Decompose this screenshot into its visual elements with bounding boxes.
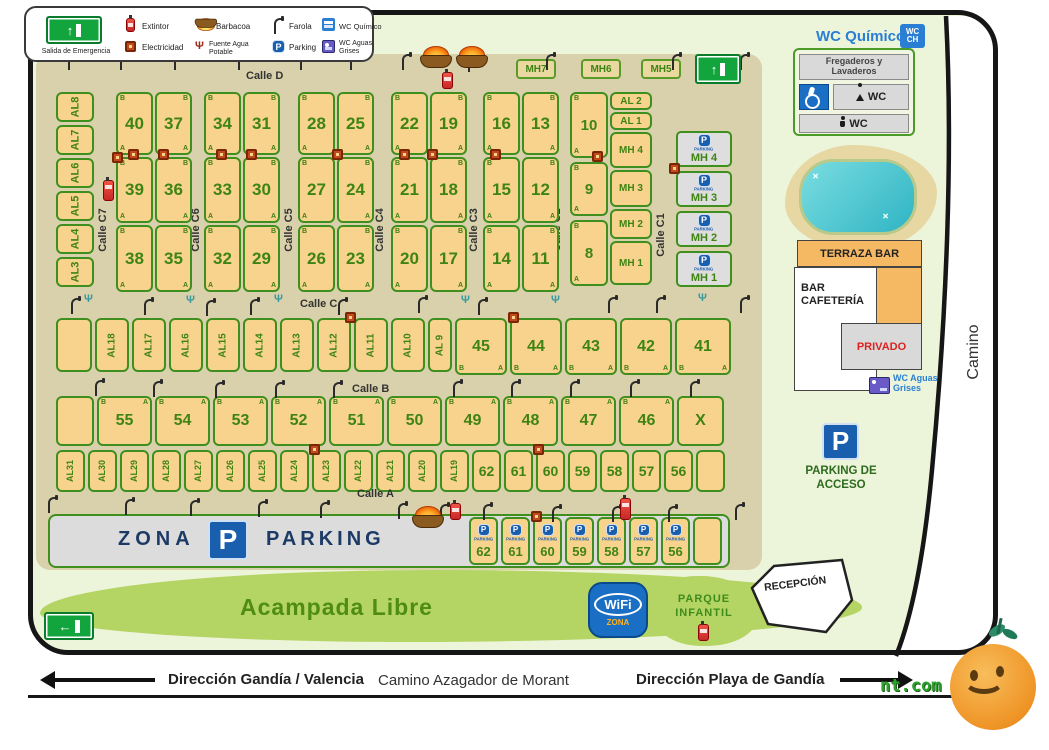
- plot-cell: B20A: [391, 225, 428, 292]
- handicap-icon: [799, 84, 829, 110]
- electricity-icon: [508, 312, 519, 323]
- up-arrow-icon: ↑: [67, 24, 74, 37]
- block6-right-column: AL 2 AL 1 MH 4 MH 3 MH 2 MH 1: [610, 92, 652, 285]
- al-plot-cell: AL6: [56, 158, 94, 188]
- electricity-icon: [332, 149, 343, 160]
- recepcion-building: [746, 558, 858, 638]
- plot-cell-blank: [693, 517, 722, 565]
- plot-cell: 62: [472, 450, 501, 492]
- parking-icon: P: [698, 134, 711, 147]
- al-plot-cell: AL28: [152, 450, 181, 492]
- farola-icon: [630, 381, 639, 396]
- plot-cell: B23A: [337, 225, 374, 292]
- street-label-calle-c5: Calle C5: [282, 198, 296, 262]
- legend-farola-label: Farola: [289, 22, 312, 31]
- plot-cell: B51A: [329, 396, 384, 446]
- al-plot-cell: AL20: [408, 450, 437, 492]
- door-icon: [75, 620, 80, 633]
- mh-plot-cell: MH 4: [610, 132, 652, 168]
- plot-cell: B18A: [430, 157, 467, 223]
- plot-cell: B36A: [155, 157, 192, 223]
- plot-cell: 57: [632, 450, 661, 492]
- plot-cell: B9A: [570, 162, 608, 216]
- al-plot-cell: AL26: [216, 450, 245, 492]
- electricity-icon: [490, 149, 501, 160]
- parking-icon: P: [822, 423, 859, 460]
- electricity-icon: [125, 41, 136, 52]
- watermark: nt.com: [880, 676, 941, 696]
- parking-icon: P: [208, 520, 248, 560]
- plot-cell: B26A: [298, 225, 335, 292]
- plot-cell: 45BA: [455, 318, 507, 375]
- wc-aguas-grises-label: WC Aguas Grises: [893, 373, 947, 394]
- mascot-leaf: [1001, 627, 1019, 642]
- farola-icon: [333, 382, 342, 397]
- mh-parking-cell: PPARKINGMH 3: [676, 171, 732, 207]
- parking-icon: P: [670, 524, 682, 536]
- al-plot-cell: AL16: [169, 318, 203, 372]
- parking-icon: P: [272, 40, 285, 53]
- plot-cell: 58: [600, 450, 629, 492]
- door-icon: [720, 63, 725, 76]
- al-plot-cell: AL18: [95, 318, 129, 372]
- parking-plot-cell: PPARKING56: [661, 517, 690, 565]
- farola-icon: [275, 382, 284, 397]
- electricity-icon: [345, 312, 356, 323]
- legend-salida-label: Salida de Emergencia: [30, 48, 122, 56]
- plot-cell: X: [677, 396, 724, 446]
- plot-cell: 60: [536, 450, 565, 492]
- fountain-icon: Ψ: [461, 295, 470, 306]
- farola-icon: [483, 504, 492, 519]
- plot-cell: B48A: [503, 396, 558, 446]
- plot-cell: B55A: [97, 396, 152, 446]
- parking-acceso-label: PARKING DE ACCESO: [786, 464, 896, 493]
- parking-icon: P: [698, 214, 711, 227]
- parking-icon: P: [542, 524, 554, 536]
- farola-icon: [740, 297, 749, 312]
- al-plot-cell: AL15: [206, 318, 240, 372]
- al-plot-cell: AL30: [88, 450, 117, 492]
- plot-block: B28A B25A B27A B24A B26A B23A: [298, 92, 374, 292]
- parking-icon: P: [698, 174, 711, 187]
- door-icon: [76, 24, 81, 37]
- woman-icon: [856, 94, 864, 101]
- al-plot-cell: AL3: [56, 257, 94, 287]
- parking-plot-cell: PPARKING58: [597, 517, 626, 565]
- plot-cell: B53A: [213, 396, 268, 446]
- plot-cell: 61: [504, 450, 533, 492]
- plot-cell: B29A: [243, 225, 280, 292]
- wifi-zone-icon: WiFi ZONA: [588, 582, 648, 638]
- al-plot-cell: AL14: [243, 318, 277, 372]
- plot-cell: B19A: [430, 92, 467, 155]
- plot-block: B16A B13A B15A B12A B14A B11A: [483, 92, 559, 292]
- plot-cell: B17A: [430, 225, 467, 292]
- plot-cell: B8A: [570, 220, 608, 286]
- plot-cell: B39A: [116, 157, 153, 223]
- direction-playa-gandia: Dirección Playa de Gandía: [636, 671, 824, 688]
- street-label-calle-c3: Calle C3: [467, 198, 481, 262]
- plot-cell: B40A: [116, 92, 153, 155]
- plot-cell: B34A: [204, 92, 241, 155]
- barbecue-icon: [412, 506, 442, 528]
- wc-aguas-grises-icon: [869, 377, 890, 394]
- plot-cell: B35A: [155, 225, 192, 292]
- plot-cell: B12A: [522, 157, 559, 223]
- farola-icon: [398, 503, 407, 518]
- al-plot-cell: AL21: [376, 450, 405, 492]
- legend: ↑ Salida de Emergencia Extintor Electric…: [24, 6, 374, 62]
- plot-cell: B21A: [391, 157, 428, 223]
- sanitary-block: Fregaderos y Lavaderos WC WC: [793, 48, 915, 136]
- wc-women-box: WC: [833, 84, 909, 110]
- electricity-icon: [309, 444, 320, 455]
- al-plot-cell: AL 1: [610, 112, 652, 130]
- electricity-icon: [128, 149, 139, 160]
- plot-cell: B30A: [243, 157, 280, 223]
- emergency-exit-sign: ↑: [695, 54, 741, 84]
- fountain-icon: Ψ: [551, 295, 560, 306]
- plot-cell: 42BA: [620, 318, 672, 375]
- parking-plot-cell: PPARKING59: [565, 517, 594, 565]
- parking-icon: P: [698, 254, 711, 267]
- plot-cell: B16A: [483, 92, 520, 155]
- mh-plot-cell: MH 3: [610, 170, 652, 207]
- left-al-column: AL8 AL7 AL6 AL5 AL4 AL3: [56, 92, 94, 287]
- farola-icon: [206, 300, 215, 315]
- mh-plot-cell: MH 2: [610, 209, 652, 239]
- legend-fuente-label: Fuente Agua Potable: [209, 41, 264, 56]
- plot-cell: B25A: [337, 92, 374, 155]
- al-plot-cell: AL29: [120, 450, 149, 492]
- campsite-map: Calle D MH7 MH6 MH5 ↑ AL8 AL7 AL6 AL5 AL…: [0, 0, 1049, 750]
- electricity-icon: [531, 511, 542, 522]
- al-plot-cell: AL7: [56, 125, 94, 155]
- plot-cell: B24A: [337, 157, 374, 223]
- plot-cell: B22A: [391, 92, 428, 155]
- street-label-calle-c: Calle C: [300, 298, 337, 310]
- row-al-south: AL31 AL30 AL29 AL28 AL27 AL26 AL25 AL24 …: [56, 450, 725, 492]
- street-label-calle-a: Calle A: [357, 488, 394, 500]
- farola-icon: [250, 299, 259, 314]
- left-arrow-icon: ←: [59, 620, 72, 633]
- man-icon: [840, 121, 845, 127]
- farola-icon: [478, 299, 487, 314]
- extinguisher-icon: [442, 72, 453, 89]
- extinguisher-icon: [620, 498, 631, 520]
- electricity-icon: [669, 163, 680, 174]
- electricity-icon: [216, 149, 227, 160]
- parking-icon: P: [478, 524, 490, 536]
- plot-cell: B15A: [483, 157, 520, 223]
- mh-parking-cell: PPARKINGMH 1: [676, 251, 732, 287]
- al-plot-cell: AL11: [354, 318, 388, 372]
- electricity-icon: [112, 152, 123, 163]
- al-plot-cell: AL8: [56, 92, 94, 122]
- farola-icon: [690, 381, 699, 396]
- terraza-bar: TERRAZA BAR: [797, 240, 922, 267]
- plot-cell: 41BA: [675, 318, 731, 375]
- farola-icon: [552, 506, 561, 521]
- extinguisher-icon: [103, 180, 114, 201]
- bottom-road-line: [28, 695, 1011, 698]
- wc-men-box: WC: [799, 114, 909, 133]
- plot-cell: B46A: [619, 396, 674, 446]
- fountain-icon: Ψ: [186, 295, 195, 306]
- parking-cells-row: PPARKING62 PPARKING61 PPARKING60 PPARKIN…: [469, 517, 722, 565]
- mh-plot-cell: MH 1: [610, 241, 652, 285]
- farola-icon: [274, 18, 283, 33]
- plot-block: B40A B37A B39A B36A B38A B35A: [116, 92, 192, 292]
- plot-cell: B14A: [483, 225, 520, 292]
- plot-cell: B31A: [243, 92, 280, 155]
- parking-plot-cell: PPARKING57: [629, 517, 658, 565]
- extinguisher-icon: [698, 624, 709, 641]
- plot-cell: B33A: [204, 157, 241, 223]
- al-plot-cell: AL23: [312, 450, 341, 492]
- wc-quimico-title: WC Químico: [816, 28, 905, 45]
- barbecue-icon: [420, 46, 450, 68]
- plot-cell-blank: [56, 396, 94, 446]
- parking-plot-cell: PPARKING60: [533, 517, 562, 565]
- parking-icon: P: [574, 524, 586, 536]
- plot-cell: B32A: [204, 225, 241, 292]
- plot-block: B34A B31A B33A B30A B32A B29A: [204, 92, 280, 292]
- legend-wc-quimico-label: WC Químico: [339, 22, 382, 31]
- plot-cell: B28A: [298, 92, 335, 155]
- electricity-icon: [158, 149, 169, 160]
- farola-icon: [215, 382, 224, 397]
- barbecue-icon: [456, 46, 486, 68]
- farola-icon: [740, 54, 749, 69]
- plot-cell: B54A: [155, 396, 210, 446]
- mh-parking-cell: PPARKINGMH 4: [676, 131, 732, 167]
- street-label-calle-c4: Calle C4: [373, 198, 387, 262]
- farola-icon: [153, 381, 162, 396]
- electricity-icon: [592, 151, 603, 162]
- farola-icon: [125, 499, 134, 514]
- fountain-icon: Ψ: [195, 41, 204, 52]
- parking-icon: P: [606, 524, 618, 536]
- electricity-icon: [399, 149, 410, 160]
- mh-parking-cell: PPARKINGMH 2: [676, 211, 732, 247]
- terraza-area: [876, 267, 922, 327]
- mascot-smile: [964, 668, 1004, 694]
- extinguisher-icon: [450, 503, 461, 520]
- street-label-calle-c7: Calle C7: [96, 198, 110, 262]
- plot-cell: B37A: [155, 92, 192, 155]
- al-plot-cell: AL 9: [428, 318, 452, 372]
- plot-cell-blank: [56, 318, 92, 372]
- farola-icon: [95, 380, 104, 395]
- parking-plot-cell: PPARKING62: [469, 517, 498, 565]
- al-plot-cell: AL31: [56, 450, 85, 492]
- al-plot-cell: AL5: [56, 191, 94, 221]
- block6-left-column: B10A B9A B8A: [570, 92, 608, 286]
- plot-cell: B11A: [522, 225, 559, 292]
- al-plot-cell: AL27: [184, 450, 213, 492]
- camino-label: Camino: [966, 312, 982, 392]
- direction-gandia-valencia: Dirección Gandía / Valencia: [168, 671, 364, 688]
- fountain-icon: Ψ: [84, 294, 93, 305]
- farola-icon: [511, 381, 520, 396]
- al-plot-cell: AL12: [317, 318, 351, 372]
- plot-cell: B27A: [298, 157, 335, 223]
- legend-wc-aguas-label: WC Aguas Grises: [339, 40, 379, 55]
- farola-icon: [570, 381, 579, 396]
- al-plot-cell: AL17: [132, 318, 166, 372]
- al-plot-cell: AL13: [280, 318, 314, 372]
- farola-icon: [656, 297, 665, 312]
- left-arrow-icon: [55, 678, 155, 682]
- plot-cell: 43BA: [565, 318, 617, 375]
- up-arrow-icon: ↑: [711, 63, 718, 76]
- farola-icon: [190, 500, 199, 515]
- farola-icon: [48, 497, 57, 512]
- plot-cell: B13A: [522, 92, 559, 155]
- farola-icon: [546, 54, 555, 69]
- legend-parking-label: Parking: [289, 43, 316, 52]
- al-plot-cell: AL10: [391, 318, 425, 372]
- farola-icon: [453, 381, 462, 396]
- wc-aguas-grises-icon: [322, 40, 335, 53]
- farola-icon: [668, 506, 677, 521]
- plot-cell: 56: [664, 450, 693, 492]
- street-label-calle-c1: Calle C1: [654, 203, 668, 267]
- al-plot-cell: AL 2: [610, 92, 652, 110]
- plot-cell: B49A: [445, 396, 500, 446]
- electricity-icon: [533, 444, 544, 455]
- barbecue-icon: [195, 18, 208, 28]
- wc-ch-icon: WC CH: [900, 24, 925, 48]
- electricity-icon: [246, 149, 257, 160]
- plot-cell-blank: [696, 450, 725, 492]
- plot-block: B22A B19A B21A B18A B20A B17A: [391, 92, 467, 292]
- parking-icon: P: [638, 524, 650, 536]
- plot-cell: B50A: [387, 396, 442, 446]
- al-plot-cell: AL25: [248, 450, 277, 492]
- al-plot-cell: AL19: [440, 450, 469, 492]
- farola-icon: [608, 297, 617, 312]
- zona-label: ZONA: [118, 528, 195, 551]
- row-calle-c: AL18 AL17 AL16 AL15 AL14 AL13 AL12 AL11 …: [56, 318, 731, 375]
- plot-cell: B38A: [116, 225, 153, 292]
- legend-barbacoa-label: Barbacoa: [216, 22, 250, 31]
- parking-icon: P: [510, 524, 522, 536]
- plot-cell: 44BA: [510, 318, 562, 375]
- electricity-icon: [427, 149, 438, 160]
- orange-mascot: [950, 644, 1036, 730]
- fountain-icon: Ψ: [274, 294, 283, 305]
- al-plot-cell: AL4: [56, 224, 94, 254]
- farola-icon: [672, 54, 681, 69]
- farola-icon: [320, 502, 329, 517]
- parking-plot-cell: PPARKING61: [501, 517, 530, 565]
- legend-extintor-label: Extintor: [142, 22, 169, 31]
- al-plot-cell: AL24: [280, 450, 309, 492]
- plot-cell: B52A: [271, 396, 326, 446]
- mh6-box: MH6: [581, 59, 621, 79]
- farola-icon: [258, 501, 267, 516]
- parking-label: PARKING: [266, 528, 385, 551]
- acampada-libre-label: Acampada Libre: [240, 594, 433, 621]
- farola-icon: [71, 298, 80, 313]
- farola-icon: [144, 299, 153, 314]
- camino-azagador-label: Camino Azagador de Morant: [378, 672, 569, 689]
- emergency-exit-sign: ↑: [46, 16, 102, 44]
- legend-electricidad-label: Electricidad: [142, 43, 183, 52]
- plot-cell: B10A: [570, 92, 608, 158]
- al-plot-cell: AL22: [344, 450, 373, 492]
- privado-area: PRIVADO: [841, 323, 922, 370]
- wc-quimico-icon: [322, 18, 335, 31]
- emergency-exit-sign: ←: [44, 612, 94, 640]
- row-calle-b: B55A B54A B53A B52A B51A B50A B49A B48A …: [56, 396, 724, 446]
- extinguisher-icon: [126, 18, 135, 32]
- mh-parking-column: PPARKINGMH 4 PPARKINGMH 3 PPARKINGMH 2 P…: [676, 131, 732, 287]
- plot-cell: B47A: [561, 396, 616, 446]
- farola-icon: [418, 297, 427, 312]
- fregaderos-box: Fregaderos y Lavaderos: [799, 54, 909, 80]
- street-label-calle-b: Calle B: [352, 383, 389, 395]
- parque-infantil-label: PARQUE INFANTIL: [656, 592, 752, 621]
- farola-icon: [735, 504, 744, 519]
- farola-icon: [402, 54, 411, 69]
- fountain-icon: Ψ: [698, 293, 707, 304]
- plot-cell: 59: [568, 450, 597, 492]
- street-label-calle-d: Calle D: [246, 70, 283, 82]
